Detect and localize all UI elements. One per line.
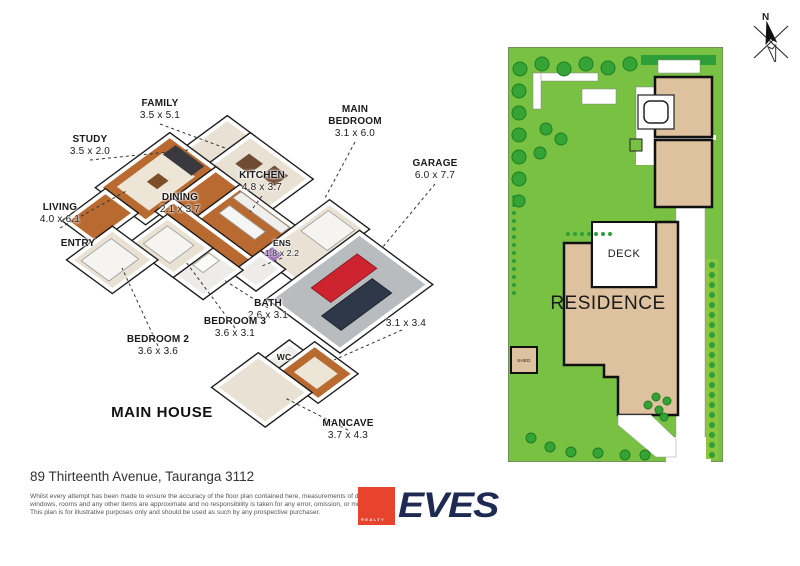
room-label-dining: DINING2.1 x 3.7 [160,192,200,216]
eves-logo: REALTY EVES [358,487,487,525]
eves-logo-subtext: REALTY [361,517,385,522]
room-label-garage: GARAGE6.0 x 7.7 [412,158,457,182]
page: { "floor_plan": { "title": "MAIN HOUSE",… [0,0,800,566]
north-arrow: N [742,6,796,62]
disclaimer-line: windows, rooms and any other items are a… [30,501,392,509]
room-label-entry: ENTRY [61,238,96,250]
room-label-ens: ENS1.8 x 2.2 [265,238,299,258]
room-label-bedroom2: BEDROOM 23.6 x 3.6 [127,334,189,358]
room-label-living: LIVING4.0 x 6.1 [40,202,80,226]
compass-icon [754,19,788,62]
site-plan: DECKRESIDENCESHED [508,47,723,462]
floor-plan: FAMILY3.5 x 5.1STUDY3.5 x 2.0MAINBEDROOM… [10,0,490,465]
disclaimer-line: Whilst every attempt has been made to en… [30,493,392,501]
disclaimer-line: This plan is for illustrative purposes o… [30,509,392,517]
floor-plan-drawing [10,0,490,465]
eves-logo-wordmark: EVES [398,487,498,525]
disclaimer-text: Whilst every attempt has been made to en… [30,493,392,518]
room-label-mancave: MANCAVE3.7 x 4.3 [322,418,373,442]
room-label-bedroom3: BEDROOM 33.6 x 3.1 [204,316,266,340]
room-label-main-bedroom: MAINBEDROOM3.1 x 6.0 [328,104,382,140]
deck-label: DECK [608,248,641,260]
shed-label: SHED [517,358,531,363]
room-label-kitchen: KITCHEN4.8 x 3.7 [239,170,285,194]
room-label-r3134: 3.1 x 3.4 [386,318,426,330]
eves-logo-square: REALTY [358,487,395,525]
residence-label: RESIDENCE [550,293,665,314]
north-label: N [762,12,769,23]
main-house-title: MAIN HOUSE [111,404,213,421]
room-label-study: STUDY3.5 x 2.0 [70,134,110,158]
room-label-family: FAMILY3.5 x 5.1 [140,98,180,122]
property-address: 89 Thirteenth Avenue, Tauranga 3112 [30,469,254,484]
room-label-wc: WC [277,352,292,362]
